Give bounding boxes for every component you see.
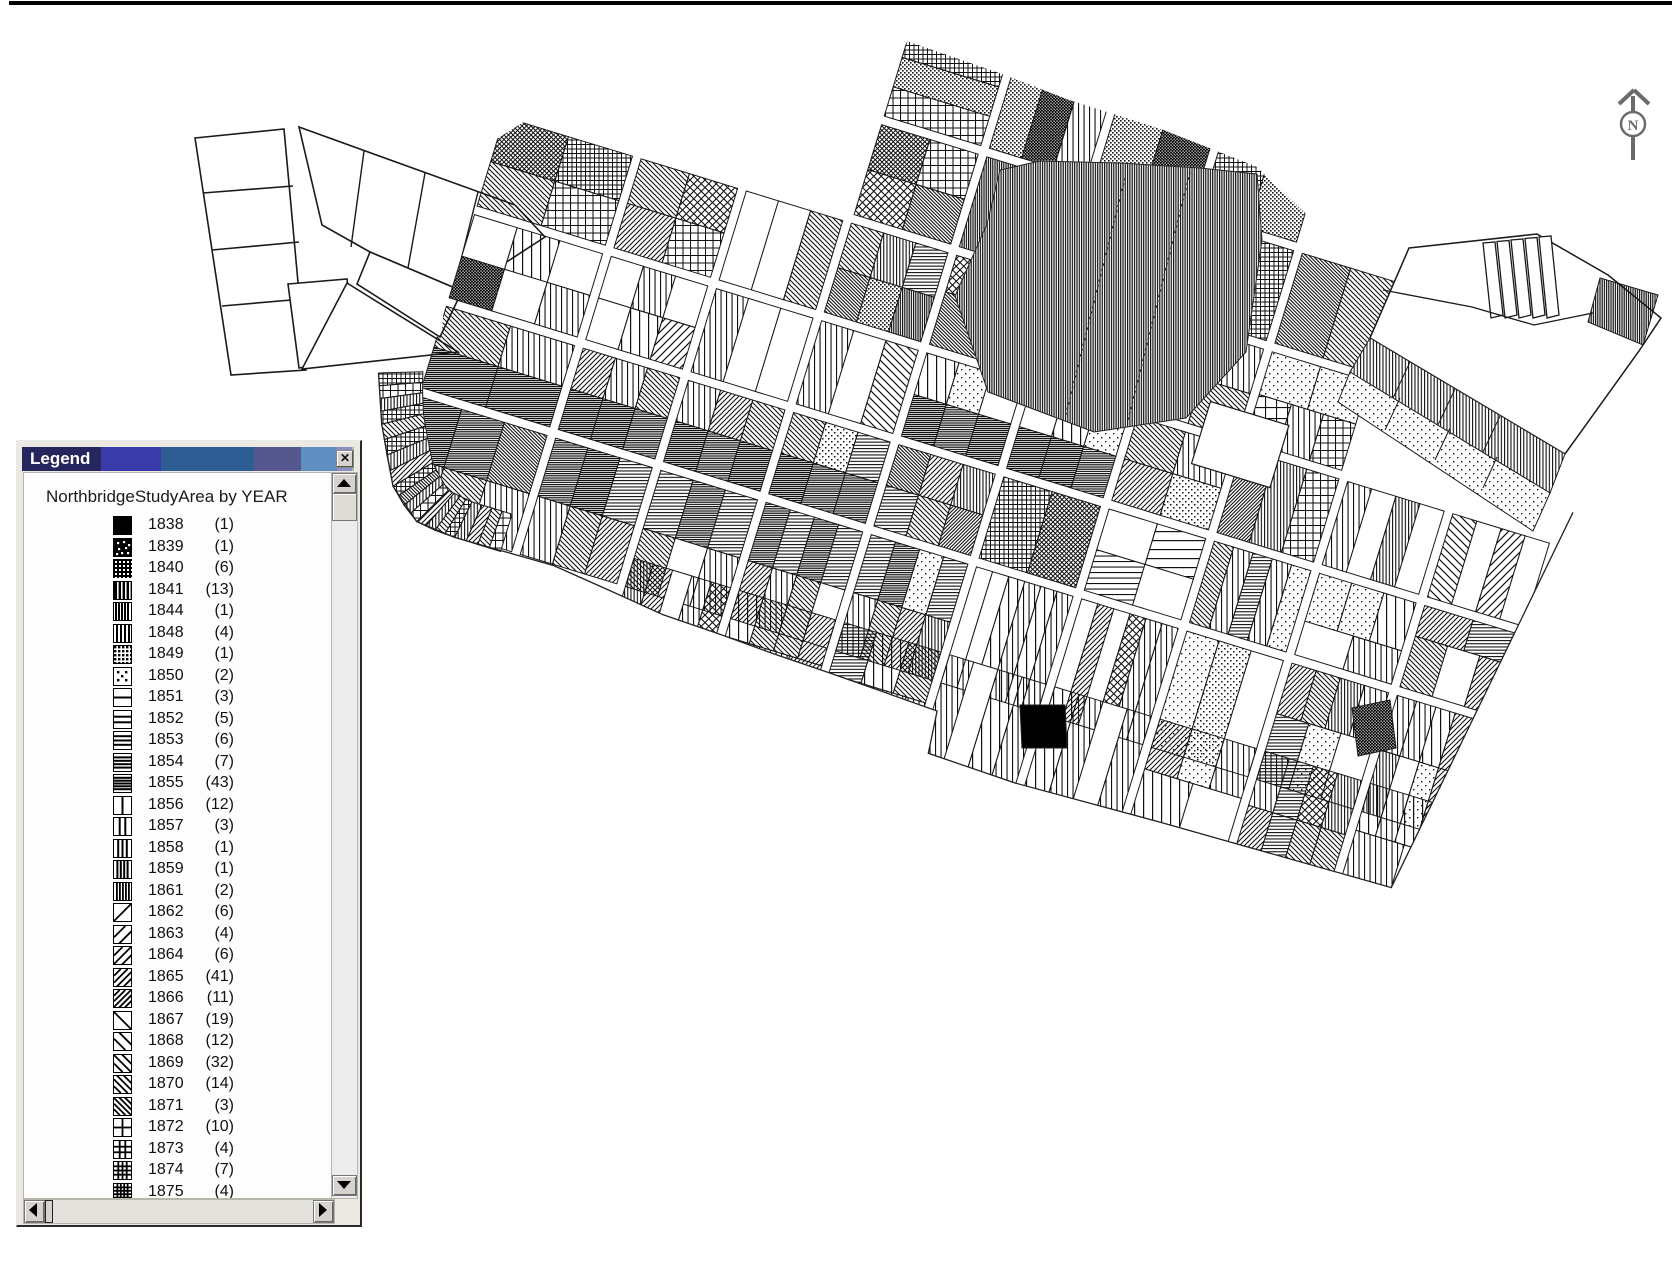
svg-text:N: N (1628, 118, 1639, 134)
